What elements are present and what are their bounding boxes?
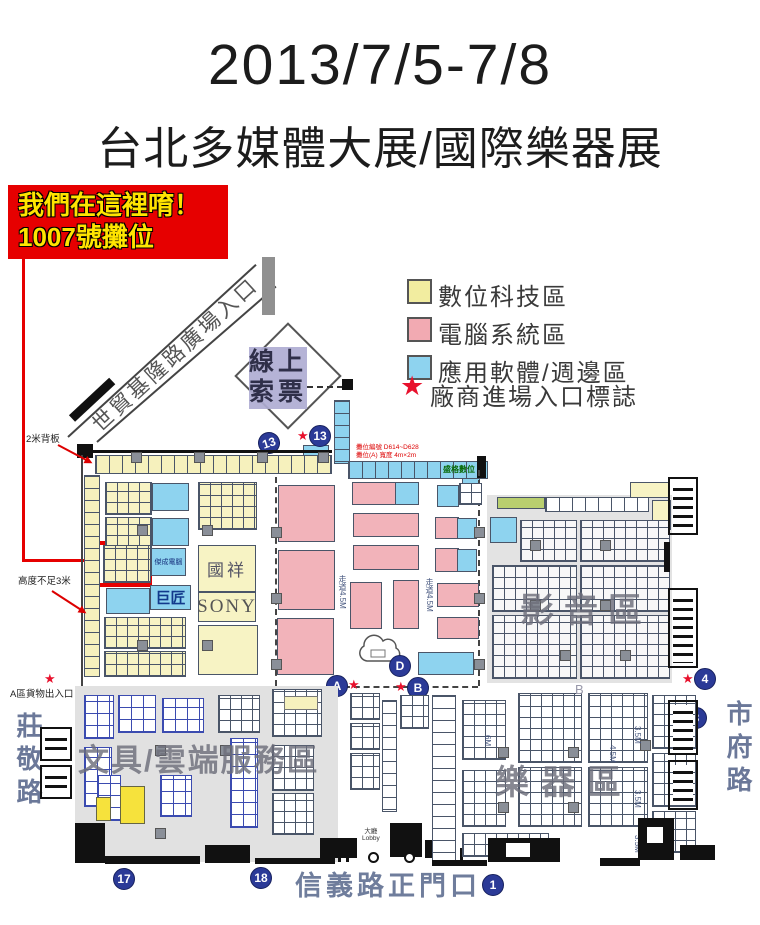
gate-marker-13: 13 bbox=[309, 425, 331, 447]
stationery-booth-grid bbox=[272, 793, 314, 835]
ticket-dashed-link bbox=[307, 386, 343, 388]
computer-booth-block bbox=[437, 617, 479, 639]
column bbox=[560, 650, 571, 661]
software-booth-block bbox=[437, 485, 459, 507]
column bbox=[131, 452, 142, 463]
event-floorplan-flyer: 2013/7/5-7/8 台北多媒體大展/國際樂器展 我們在這裡唷！ 1007號… bbox=[0, 0, 760, 925]
computer-booth-block bbox=[435, 517, 459, 539]
stationery-booth-grid bbox=[160, 775, 192, 817]
legend-swatch-computer bbox=[407, 317, 432, 342]
column bbox=[137, 640, 148, 651]
callout-connector-vertical bbox=[22, 256, 25, 562]
vendor-sony-booth: SONY bbox=[198, 592, 256, 622]
entrance-star-A: ★ bbox=[348, 678, 360, 691]
street-shifu: 市府路 bbox=[720, 700, 757, 799]
legend-label-computer: 電腦系統區 bbox=[438, 315, 568, 350]
side-door-structure bbox=[668, 760, 698, 810]
booth-strip bbox=[545, 497, 649, 512]
zone-label-av: 影音區 bbox=[520, 583, 652, 632]
upper-structure-bar bbox=[262, 257, 275, 315]
digital-booth-grid bbox=[105, 482, 152, 515]
height-limit-note: 高度不足3米 bbox=[18, 573, 71, 587]
side-door-structure bbox=[668, 477, 698, 535]
computer-booth-block bbox=[277, 618, 334, 675]
highlight-booth-yellow bbox=[96, 797, 111, 821]
column bbox=[202, 640, 213, 651]
software-booth-block bbox=[152, 518, 189, 546]
column bbox=[530, 540, 541, 551]
av-booth-grid bbox=[520, 520, 577, 562]
bottom-wall bbox=[105, 856, 200, 864]
vendor-jiecheng-booth: 傑成電腦 bbox=[151, 548, 186, 576]
vendor-shengge-label: 盛格數位 bbox=[443, 464, 475, 475]
aisle-label-35m: 3.5M bbox=[633, 790, 642, 808]
column bbox=[474, 593, 485, 604]
instrument-booth-column bbox=[432, 695, 456, 865]
computer-booth-block bbox=[278, 485, 335, 542]
booth-size-note: 攤位(A) 寬度 4m×2m bbox=[356, 449, 416, 459]
software-booth-block bbox=[152, 483, 189, 511]
software-booth-block bbox=[490, 517, 517, 543]
aisle-label-45-right: 走道4.5M bbox=[424, 578, 435, 612]
aisle-label-45-left: 走道4.5M bbox=[337, 575, 348, 609]
gate-dot bbox=[368, 852, 379, 863]
lobby-label-zh: 大廳 bbox=[362, 828, 380, 835]
digital-booth-block bbox=[630, 482, 670, 498]
booth-1007-grid bbox=[103, 545, 151, 583]
gate-notch bbox=[646, 826, 664, 844]
aisle-label-35m: 3.5M bbox=[633, 726, 642, 744]
gate-hash bbox=[338, 848, 341, 862]
entrance-star-4: ★ bbox=[682, 672, 694, 685]
gate-marker-D: D bbox=[389, 655, 411, 677]
height-limit-arrow bbox=[51, 590, 81, 610]
callout-line2: 1007號攤位 bbox=[18, 221, 218, 253]
entrance-star-B: ★ bbox=[395, 680, 407, 693]
column bbox=[155, 828, 166, 839]
pale-booth-strip bbox=[284, 696, 318, 710]
software-strip-vertical bbox=[334, 400, 350, 464]
online-ticket-box: 線上 索票 bbox=[249, 347, 307, 409]
software-booth-block bbox=[395, 482, 419, 505]
callout-line1: 我們在這裡唷！ bbox=[18, 189, 218, 221]
gate-dot bbox=[404, 852, 415, 863]
computer-booth-block bbox=[350, 582, 382, 629]
column bbox=[474, 527, 485, 538]
legend-swatch-digital bbox=[407, 279, 432, 304]
column bbox=[257, 452, 268, 463]
lobby-label: 大廳 Lobby bbox=[362, 828, 380, 842]
corridor-booth bbox=[400, 695, 429, 729]
column bbox=[271, 659, 282, 670]
gate-marker-4: 4 bbox=[694, 668, 716, 690]
gate-hash bbox=[346, 848, 349, 862]
street-xinyi-gate: 信義路正門口 bbox=[295, 864, 481, 903]
column bbox=[271, 593, 282, 604]
software-booth-block bbox=[457, 549, 477, 572]
computer-booth-block bbox=[393, 580, 419, 629]
corridor-booth bbox=[350, 753, 380, 790]
bottom-wall bbox=[600, 858, 640, 866]
side-wall-stub bbox=[664, 542, 670, 572]
corridor-booth-column bbox=[382, 700, 397, 812]
cargo-entrance-note: A區貨物出入口 bbox=[10, 686, 73, 700]
event-date-title: 2013/7/5-7/8 bbox=[0, 32, 760, 98]
column bbox=[202, 525, 213, 536]
corridor-booth bbox=[350, 693, 380, 720]
computer-booth-block bbox=[353, 545, 419, 570]
gate-notch bbox=[505, 842, 531, 858]
av-booth-grid bbox=[580, 520, 670, 562]
entrance-star-13: ★ bbox=[297, 429, 309, 442]
wall-block bbox=[205, 845, 250, 863]
zone-b-label: B bbox=[575, 682, 584, 697]
stationery-booth-grid bbox=[118, 695, 156, 733]
column bbox=[194, 452, 205, 463]
plaza-entrance-street-label: 世貿基隆路廣場入口 bbox=[85, 254, 282, 438]
computer-booth-block bbox=[352, 482, 397, 505]
aisle-label-45m: 4.5M bbox=[608, 745, 617, 763]
booth-grid bbox=[459, 483, 482, 505]
stationery-booth-grid bbox=[162, 698, 204, 733]
column bbox=[620, 650, 631, 661]
side-door-structure bbox=[668, 588, 698, 668]
event-name-subtitle: 台北多媒體大展/國際樂器展 bbox=[0, 112, 760, 177]
corner-wall-block bbox=[75, 823, 105, 863]
column bbox=[600, 540, 611, 551]
side-door-structure bbox=[40, 727, 72, 761]
column bbox=[318, 452, 329, 463]
zone-label-stationery: 文具/雲端服務區 bbox=[78, 735, 320, 780]
computer-booth-block bbox=[435, 548, 459, 572]
lobby-label-en: Lobby bbox=[362, 835, 380, 842]
digital-left-booth-column bbox=[84, 475, 100, 677]
highlight-booth-yellow bbox=[120, 786, 145, 824]
stationery-booth-grid bbox=[218, 695, 260, 733]
column bbox=[137, 525, 148, 536]
vendor-guoxiang-booth: 國祥 bbox=[198, 545, 256, 592]
software-booth-wide bbox=[418, 652, 474, 675]
digital-booth-grid bbox=[104, 651, 186, 677]
digital-booth-block bbox=[198, 482, 257, 530]
bottom-wall bbox=[680, 845, 715, 860]
hall-a-left-wall bbox=[81, 455, 83, 688]
online-ticket-line1: 線上 bbox=[249, 347, 307, 377]
booth-callout: 我們在這裡唷！ 1007號攤位 bbox=[8, 185, 228, 259]
legend-label-digital: 數位科技區 bbox=[438, 277, 568, 312]
legend-label-entrance: 廠商進場入口標誌 bbox=[430, 377, 638, 412]
green-booth-strip bbox=[497, 497, 545, 509]
entrance-star-cargo: ★ bbox=[44, 672, 56, 685]
gate-marker-18: 18 bbox=[250, 867, 272, 889]
corridor-booth bbox=[350, 723, 380, 750]
legend-star-icon: ★ bbox=[400, 373, 424, 400]
backboard-note: 2米背板 bbox=[26, 431, 60, 445]
stationery-booth-grid bbox=[84, 695, 114, 739]
computer-booth-block bbox=[437, 583, 479, 607]
computer-booth-block bbox=[353, 513, 419, 537]
aisle-label-6m: 6M bbox=[483, 735, 492, 746]
vendor-jujiang-booth: 巨匠 bbox=[150, 585, 191, 610]
ticket-post bbox=[342, 379, 353, 390]
side-door-structure bbox=[40, 765, 72, 799]
side-door-structure bbox=[668, 700, 698, 755]
column bbox=[474, 659, 485, 670]
software-booth-block bbox=[106, 588, 150, 614]
online-ticket-line2: 索票 bbox=[249, 377, 307, 407]
gate-marker-17: 17 bbox=[113, 868, 135, 890]
gate-marker-1: 1 bbox=[482, 874, 504, 896]
column bbox=[271, 527, 282, 538]
computer-booth-block bbox=[278, 550, 335, 610]
hall-a-top-wall bbox=[92, 450, 332, 453]
